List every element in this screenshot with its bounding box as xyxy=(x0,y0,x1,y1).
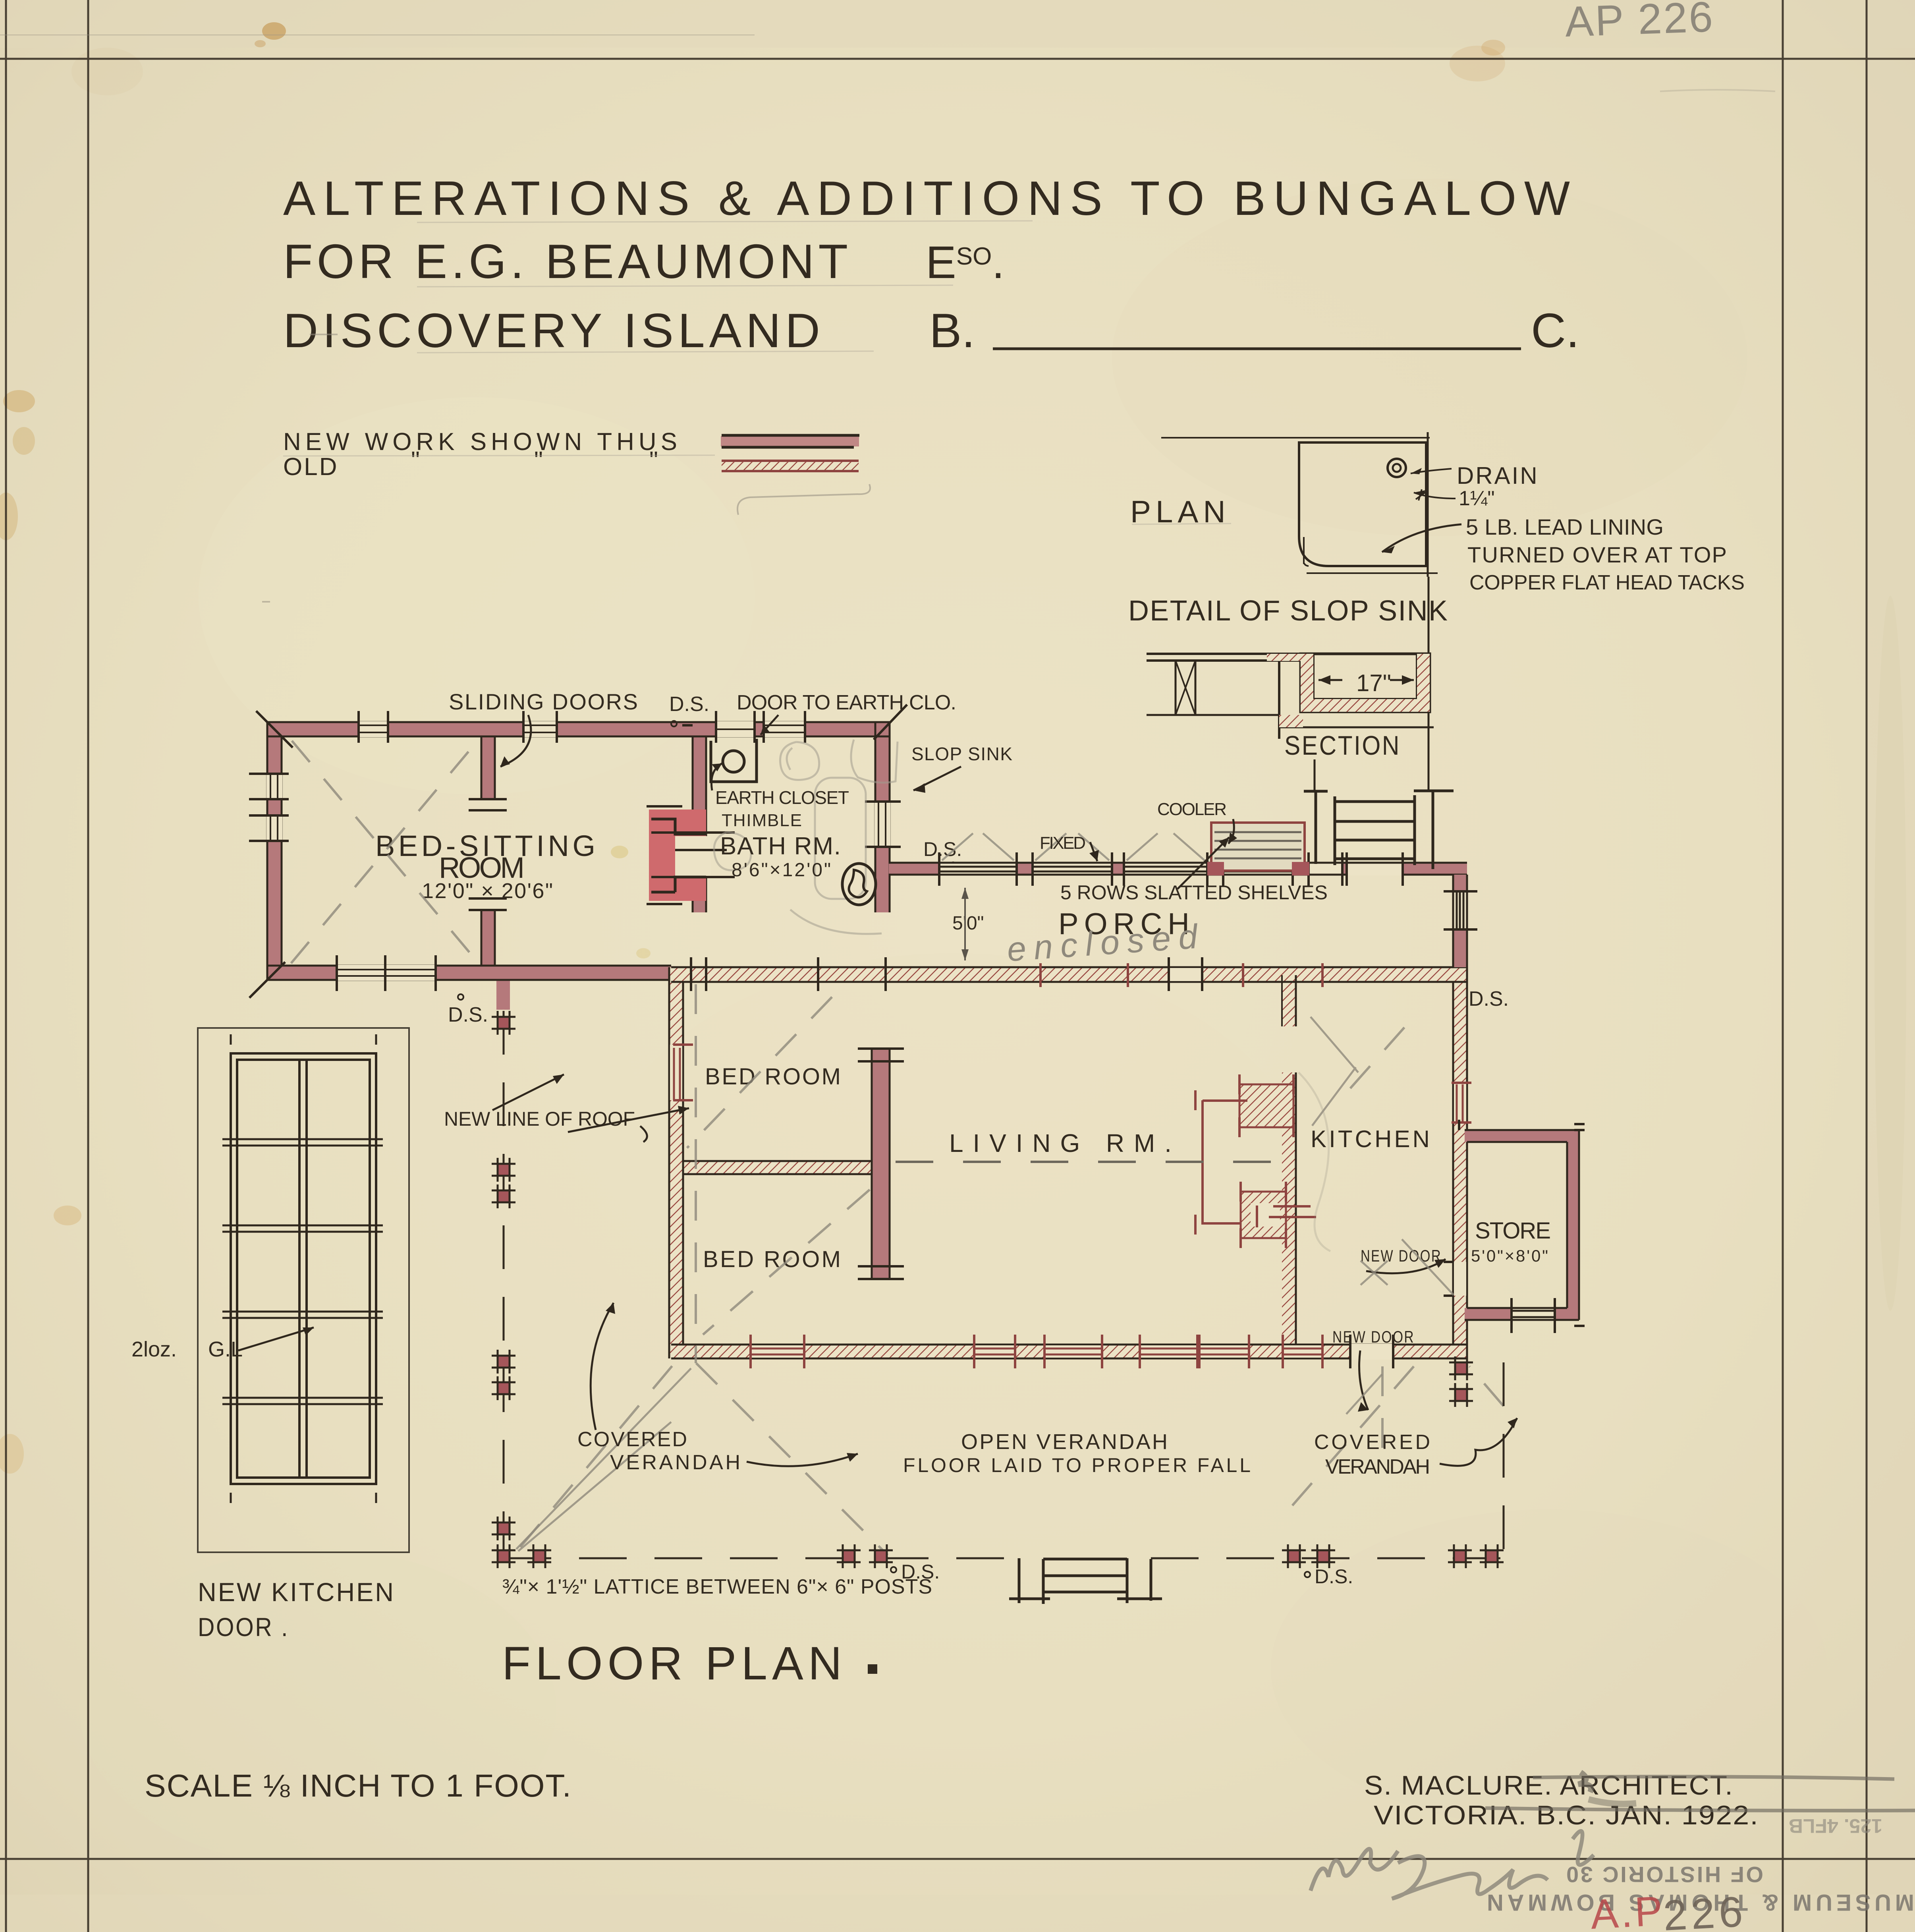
svg-text:NEW WORK SHOWN THUS: NEW WORK SHOWN THUS xyxy=(283,428,679,456)
svg-text:COPPER FLAT HEAD TACKS: COPPER FLAT HEAD TACKS xyxy=(1469,571,1745,594)
svg-text:VICTORIA. B.C. JAN. 1922.: VICTORIA. B.C. JAN. 1922. xyxy=(1374,1800,1759,1830)
svg-text:¾"× 1'½" LATTICE BETWEEN 6"× 6: ¾"× 1'½" LATTICE BETWEEN 6"× 6" POSTS xyxy=(502,1575,933,1598)
svg-text:": " xyxy=(411,447,420,474)
svg-text:DETAIL OF SLOP SINK: DETAIL OF SLOP SINK xyxy=(1128,595,1452,627)
svg-text:D.S.: D.S. xyxy=(1315,1565,1353,1588)
svg-text:LIVING RM.: LIVING RM. xyxy=(949,1129,1176,1157)
svg-text:BED ROOM: BED ROOM xyxy=(703,1246,844,1272)
svg-text:1¼": 1¼" xyxy=(1459,487,1495,510)
svg-text:NEW DOOR: NEW DOOR xyxy=(1361,1246,1442,1265)
svg-text:NEW DOOR: NEW DOOR xyxy=(1332,1327,1415,1346)
svg-text:D.S.: D.S. xyxy=(1469,987,1509,1010)
svg-text:G.L: G.L xyxy=(208,1337,243,1361)
svg-text:SECTION: SECTION xyxy=(1284,730,1401,761)
svg-text:ALTERATIONS & ADDITIONS TO BUN: ALTERATIONS & ADDITIONS TO BUNGALOW xyxy=(283,171,1573,225)
svg-text:NEW KITCHEN: NEW KITCHEN xyxy=(198,1577,395,1607)
svg-text:AP 226: AP 226 xyxy=(1564,0,1719,46)
svg-text:A.P: A.P xyxy=(1589,1888,1666,1932)
svg-text:5'0"×8'0": 5'0"×8'0" xyxy=(1471,1246,1548,1265)
svg-text:FIXED: FIXED xyxy=(1040,833,1087,853)
svg-text:17": 17" xyxy=(1356,670,1391,696)
svg-text:125. 4FLB: 125. 4FLB xyxy=(1789,1815,1882,1837)
svg-text:": " xyxy=(534,447,543,474)
svg-text:BATH RM.: BATH RM. xyxy=(720,833,843,860)
svg-text:B.: B. xyxy=(929,303,975,357)
svg-text:EARTH CLOSET: EARTH CLOSET xyxy=(715,787,850,808)
svg-text:COVERED: COVERED xyxy=(577,1428,689,1451)
svg-text:5 ROWS SLATTED SHELVES: 5 ROWS SLATTED SHELVES xyxy=(1060,881,1329,904)
svg-text:D.S.: D.S. xyxy=(669,693,709,716)
svg-text:C.: C. xyxy=(1531,303,1579,357)
svg-text:THIMBLE: THIMBLE xyxy=(722,811,803,830)
svg-text:226: 226 xyxy=(1662,1887,1748,1932)
svg-text:5'0": 5'0" xyxy=(952,913,984,934)
svg-text:SLOP SINK: SLOP SINK xyxy=(911,744,1015,764)
svg-text:5 LB. LEAD LINING: 5 LB. LEAD LINING xyxy=(1466,514,1664,539)
svg-text:TURNED OVER AT TOP: TURNED OVER AT TOP xyxy=(1467,542,1728,567)
svg-text:2loz.: 2loz. xyxy=(131,1337,177,1361)
svg-text:NEW LINE OF ROOF: NEW LINE OF ROOF xyxy=(444,1108,636,1130)
svg-text:COVERED: COVERED xyxy=(1314,1431,1432,1454)
svg-text:SCALE ⅛ INCH TO 1 FOOT.: SCALE ⅛ INCH TO 1 FOOT. xyxy=(145,1768,572,1803)
svg-text:OLD: OLD xyxy=(283,453,338,481)
svg-text:FLOOR PLAN: FLOOR PLAN xyxy=(502,1637,847,1690)
svg-text:SLIDING DOORS: SLIDING DOORS xyxy=(449,689,639,714)
svg-text:DOOR .: DOOR . xyxy=(198,1612,289,1642)
svg-text:OPEN VERANDAH: OPEN VERANDAH xyxy=(961,1430,1171,1454)
svg-text:FOR E.G. BEAUMONT: FOR E.G. BEAUMONT xyxy=(283,234,851,288)
svg-text:BED ROOM: BED ROOM xyxy=(705,1064,844,1090)
svg-text:FLOOR LAID TO PROPER FALL: FLOOR LAID TO PROPER FALL xyxy=(903,1454,1252,1476)
svg-text:VERANDAH: VERANDAH xyxy=(1325,1455,1432,1478)
svg-text:OF HISTORIC 30: OF HISTORIC 30 xyxy=(1565,1862,1763,1887)
svg-text:STORE: STORE xyxy=(1475,1218,1553,1244)
svg-text:12'0" × 20'6": 12'0" × 20'6" xyxy=(422,879,553,903)
svg-text:DRAIN: DRAIN xyxy=(1457,462,1539,489)
svg-text:": " xyxy=(649,447,658,474)
svg-text:DISCOVERY ISLAND: DISCOVERY ISLAND xyxy=(283,303,823,357)
svg-text:D.S.: D.S. xyxy=(448,1003,488,1026)
svg-text:VERANDAH: VERANDAH xyxy=(610,1451,743,1474)
svg-text:DOOR TO EARTH CLO.: DOOR TO EARTH CLO. xyxy=(737,691,957,714)
svg-text:COOLER: COOLER xyxy=(1157,800,1229,819)
